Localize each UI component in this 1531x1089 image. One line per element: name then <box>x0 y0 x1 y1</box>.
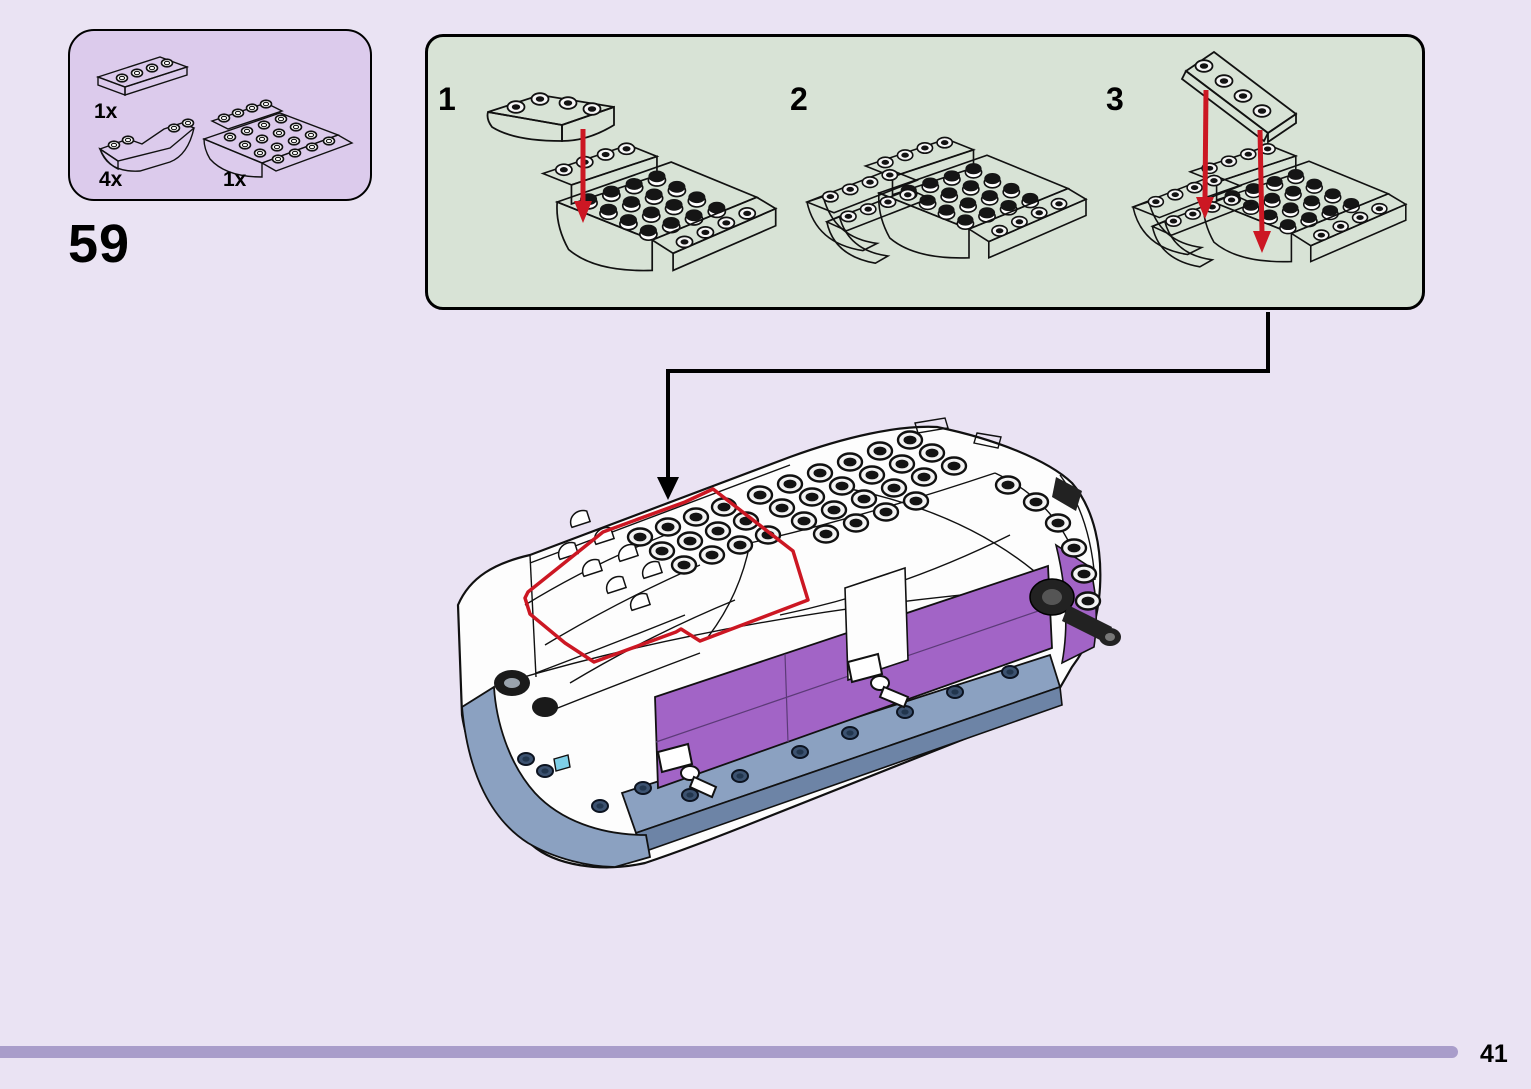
parts-callout-box: 1x 4x 1x <box>68 29 372 201</box>
part-count: 4x <box>99 169 122 190</box>
substeps-box: 1 2 3 <box>425 34 1425 310</box>
page-number: 41 <box>1480 1040 1508 1069</box>
instruction-page: 1x 4x 1x 59 1 2 3 <box>0 0 1531 1089</box>
part-thumb-inverted-double-slope <box>204 100 352 177</box>
part-count: 1x <box>94 101 117 122</box>
part-count: 1x <box>223 169 246 190</box>
substep-1-illustration <box>428 37 783 307</box>
part-thumb-inverted-curved-slope <box>100 119 194 171</box>
progress-bar <box>0 1046 1458 1058</box>
substep-3-illustration <box>1100 37 1428 307</box>
red-guide-arrow <box>1196 90 1214 219</box>
floating-piece <box>488 93 615 141</box>
main-model-illustration <box>450 415 1130 885</box>
floating-plate-1x4 <box>1182 52 1296 142</box>
step-number: 59 <box>68 213 130 275</box>
part-thumb-plate-1x4 <box>98 57 187 95</box>
substep-2-illustration <box>783 37 1100 307</box>
